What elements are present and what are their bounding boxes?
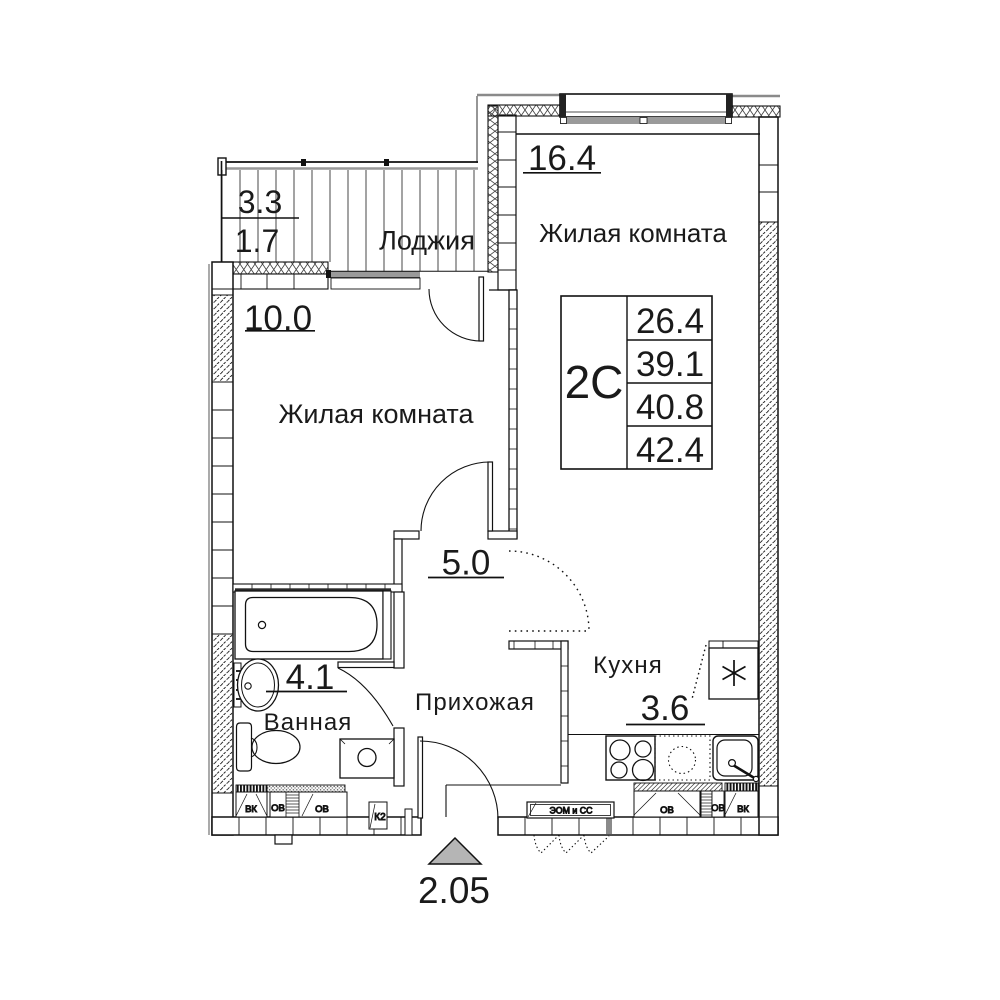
svg-text:Ванная: Ванная xyxy=(264,709,353,736)
svg-text:ОВ: ОВ xyxy=(271,803,285,814)
svg-text:39.1: 39.1 xyxy=(636,345,704,384)
svg-text:К2: К2 xyxy=(374,812,386,823)
svg-text:ОВ: ОВ xyxy=(660,805,674,816)
svg-text:ВК: ВК xyxy=(737,804,749,815)
svg-text:3.6: 3.6 xyxy=(641,689,690,728)
svg-text:Кухня: Кухня xyxy=(593,652,663,679)
svg-text:10.0: 10.0 xyxy=(244,299,312,338)
svg-text:3.3: 3.3 xyxy=(238,184,282,220)
svg-text:40.8: 40.8 xyxy=(636,388,704,427)
svg-text:ЭОМ и СС: ЭОМ и СС xyxy=(549,806,593,816)
svg-text:ОВ: ОВ xyxy=(315,804,329,815)
svg-text:26.4: 26.4 xyxy=(636,302,704,341)
svg-text:1.7: 1.7 xyxy=(235,223,279,259)
svg-text:Прихожая: Прихожая xyxy=(415,689,535,716)
svg-text:Лоджия: Лоджия xyxy=(379,226,475,256)
svg-text:ВК: ВК xyxy=(245,804,257,815)
svg-text:Жилая комната: Жилая комната xyxy=(278,399,474,429)
svg-text:2.05: 2.05 xyxy=(418,870,490,911)
svg-text:ОВ: ОВ xyxy=(711,803,725,814)
svg-text:Жилая комната: Жилая комната xyxy=(539,218,727,248)
svg-text:42.4: 42.4 xyxy=(636,431,704,470)
svg-text:2С: 2С xyxy=(565,356,624,408)
